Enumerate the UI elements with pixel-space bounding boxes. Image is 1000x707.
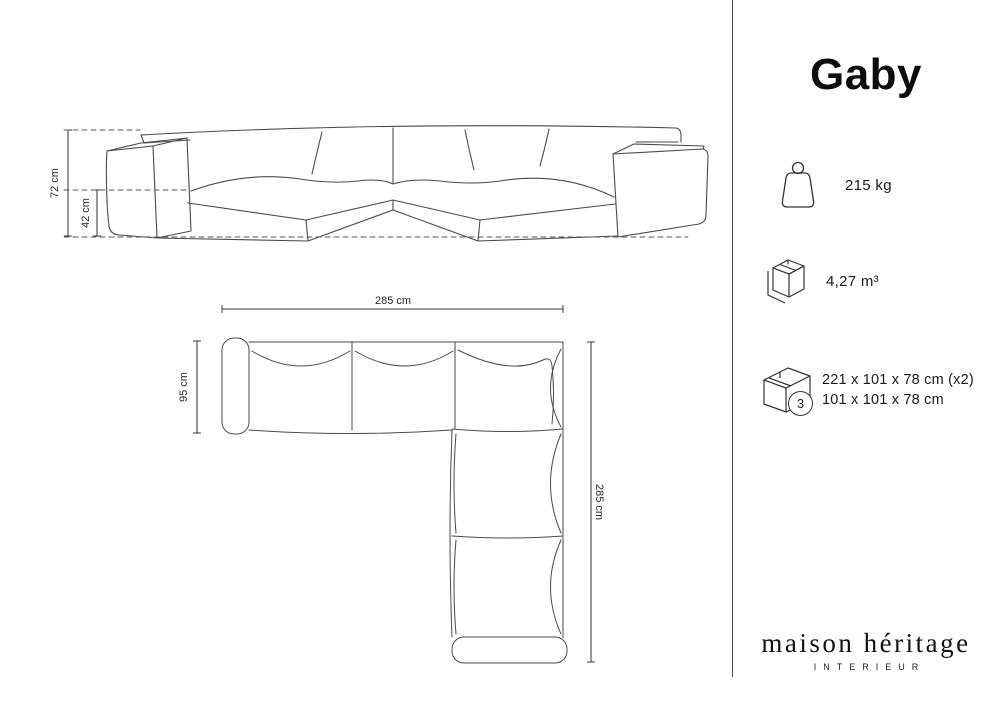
weight-spec-row: 215 kg bbox=[778, 160, 892, 210]
packaging-spec-row: 3 221 x 101 x 78 cm (x2) 101 x 101 x 78 … bbox=[758, 362, 974, 418]
volume-icon bbox=[760, 254, 812, 308]
dim-label-seat-height: 42 cm bbox=[80, 198, 92, 228]
package-icon: 3 bbox=[758, 362, 814, 418]
product-dimension-sheet: 72 cm 42 cm 285 cm 95 cm 285 cm Gaby 215… bbox=[0, 0, 1000, 707]
dim-label-width: 285 cm bbox=[375, 295, 411, 307]
sofa-technical-drawing bbox=[0, 0, 732, 707]
brand-subtitle: INTERIEUR bbox=[732, 662, 1000, 672]
package-dimensions-line-1: 221 x 101 x 78 cm (x2) bbox=[822, 370, 974, 390]
volume-value: 4,27 m³ bbox=[826, 273, 879, 290]
product-title: Gaby bbox=[732, 50, 1000, 100]
dim-label-depth: 95 cm bbox=[178, 372, 190, 402]
top-view-drawing bbox=[194, 306, 595, 664]
dim-label-height: 72 cm bbox=[49, 168, 61, 198]
spec-panel: Gaby 215 kg 4,27 m³ bbox=[732, 0, 1000, 707]
front-view-drawing bbox=[64, 126, 708, 241]
dim-label-length: 285 cm bbox=[593, 484, 605, 520]
package-dimensions-line-2: 101 x 101 x 78 cm bbox=[822, 390, 974, 410]
brand-logo: maison héritage INTERIEUR bbox=[732, 628, 1000, 672]
volume-spec-row: 4,27 m³ bbox=[760, 254, 879, 308]
weight-icon bbox=[778, 160, 818, 210]
weight-value: 215 kg bbox=[845, 177, 892, 194]
brand-name: maison héritage bbox=[732, 628, 1000, 659]
package-count-badge: 3 bbox=[788, 391, 813, 416]
